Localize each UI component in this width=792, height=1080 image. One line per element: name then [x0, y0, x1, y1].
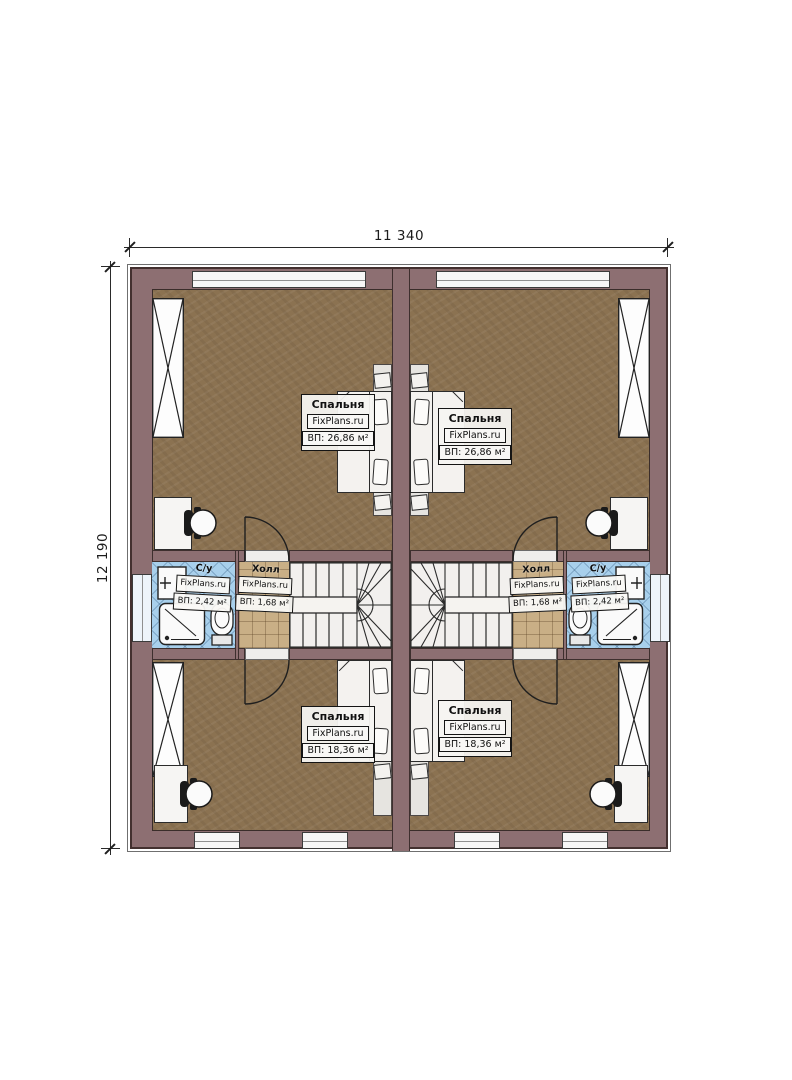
nightstand-icon — [373, 763, 391, 780]
room-label-bedroom-top-right: Спальня FixPlans.ru ВП: 26,86 м² — [438, 408, 512, 465]
nightstand-icon — [410, 763, 428, 780]
brand-watermark: FixPlans.ru — [176, 575, 231, 595]
room-area: ВП: 18,36 м² — [439, 737, 510, 752]
window — [194, 832, 240, 849]
pillow-icon — [372, 459, 389, 486]
room-name: С/у — [195, 563, 212, 576]
brand-watermark: FixPlans.ru — [444, 428, 505, 443]
brand-watermark: FixPlans.ru — [572, 575, 627, 595]
room-label-bedroom-bottom-right: Спальня FixPlans.ru ВП: 18,36 м² — [438, 700, 512, 757]
nightstand-icon — [373, 494, 391, 511]
room-name: Спальня — [312, 710, 365, 724]
brand-watermark: FixPlans.ru — [238, 576, 292, 595]
interior-wall — [152, 648, 245, 660]
office-chair-icon — [182, 505, 218, 541]
interior-wall — [410, 550, 513, 562]
dimension-width-value: 11 340 — [130, 228, 668, 244]
window — [650, 574, 670, 642]
interior-wall — [289, 550, 392, 562]
pillow-icon — [413, 728, 430, 755]
room-area: ВП: 1,68 м² — [509, 594, 567, 613]
brand-watermark: FixPlans.ru — [307, 726, 368, 741]
brand-watermark: FixPlans.ru — [307, 414, 368, 429]
dimension-line — [124, 247, 674, 248]
dimension-height-value: 12 190 — [95, 518, 111, 598]
wardrobe-icon — [152, 662, 184, 777]
nightstand-icon — [410, 494, 428, 511]
room-name: Спальня — [449, 412, 502, 426]
nightstand-icon — [373, 372, 391, 389]
window — [132, 574, 152, 642]
window — [302, 832, 348, 849]
room-name: Холл — [522, 563, 550, 576]
room-label-wc-right: С/у FixPlans.ru ВП: 2,42 м² — [563, 561, 635, 613]
office-chair-icon — [584, 505, 620, 541]
door-swing-icon — [511, 515, 559, 562]
room-area: ВП: 1,68 м² — [235, 594, 293, 613]
room-name: Холл — [252, 563, 280, 576]
room-label-wc-left: С/у FixPlans.ru ВП: 2,42 м² — [167, 561, 239, 613]
sheet-line — [432, 661, 433, 761]
floor-plan-page: 11 340 12 190 — [0, 0, 792, 1080]
brand-watermark: FixPlans.ru — [510, 576, 564, 595]
room-label-hall-right: Холл FixPlans.ru ВП: 1,68 м² — [504, 563, 570, 614]
blanket-fold — [339, 660, 350, 671]
interior-wall — [410, 648, 513, 660]
sheet-line — [432, 392, 433, 492]
staircase-icon — [289, 562, 392, 648]
room-area: ВП: 2,42 м² — [571, 592, 629, 612]
interior-wall — [289, 648, 392, 660]
blanket-fold — [452, 391, 463, 402]
wardrobe-icon — [152, 298, 184, 438]
room-label-hall-left: Холл FixPlans.ru ВП: 1,68 м² — [232, 563, 298, 614]
blanket-fold — [452, 660, 463, 671]
room-name: Спальня — [449, 704, 502, 718]
room-label-bedroom-top-left: Спальня FixPlans.ru ВП: 26,86 м² — [301, 394, 375, 451]
interior-wall — [557, 648, 650, 660]
door-swing-icon — [243, 659, 291, 706]
interior-wall — [557, 550, 650, 562]
door-swing-icon — [243, 515, 291, 562]
party-wall — [392, 269, 410, 851]
room-area: ВП: 18,36 м² — [302, 743, 373, 758]
office-chair-icon — [178, 776, 214, 812]
room-area: ВП: 26,86 м² — [439, 445, 510, 460]
window — [454, 832, 500, 849]
window — [192, 271, 366, 288]
wardrobe-icon — [618, 298, 650, 438]
brand-watermark: FixPlans.ru — [444, 720, 505, 735]
floor-plan: Спальня FixPlans.ru ВП: 26,86 м² Спальня… — [130, 267, 668, 849]
wardrobe-icon — [618, 662, 650, 777]
pillow-icon — [413, 668, 430, 695]
pillow-icon — [372, 668, 389, 695]
room-name: Спальня — [312, 398, 365, 412]
window — [436, 271, 610, 288]
pillow-icon — [413, 399, 430, 426]
window — [562, 832, 608, 849]
office-chair-icon — [588, 776, 624, 812]
room-area: ВП: 26,86 м² — [302, 431, 373, 446]
room-name: С/у — [589, 563, 606, 576]
pillow-icon — [413, 459, 430, 486]
staircase-icon — [410, 562, 513, 648]
room-area: ВП: 2,42 м² — [173, 592, 231, 612]
interior-wall — [152, 550, 245, 562]
nightstand-icon — [410, 372, 428, 389]
room-label-bedroom-bottom-left: Спальня FixPlans.ru ВП: 18,36 м² — [301, 706, 375, 763]
door-swing-icon — [511, 659, 559, 706]
